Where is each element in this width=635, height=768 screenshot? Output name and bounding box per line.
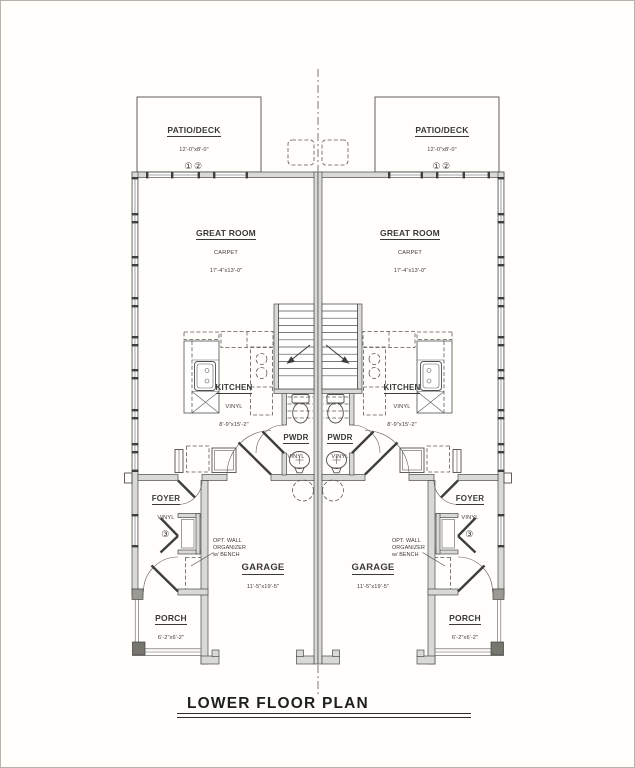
porch-post [133, 642, 146, 655]
opt-organizer-outline [186, 553, 214, 590]
staircase [279, 304, 315, 389]
pwdr-label-left: PWDR VINYL [274, 427, 318, 463]
upper-cabinets [184, 332, 219, 340]
great-room-label-left: GREAT ROOM CARPET 17'-4"x13'-0" [178, 223, 274, 277]
drawing-title: LOWER FLOOR PLAN [187, 695, 369, 713]
kitchen-label-right: KITCHEN VINYL 8'-9"x15'-2" [377, 377, 427, 431]
toilet-icon [292, 395, 309, 424]
ac-pad [288, 140, 314, 165]
patio-label-left: PATIO/DECK 12'-0"x8'-0" ①② [146, 120, 242, 174]
kitchen-label-left: KITCHEN VINYL 8'-9"x15'-2" [209, 377, 259, 431]
patio-label-right: PATIO/DECK 12'-0"x8'-0" ①② [394, 120, 490, 174]
pwdr-label-right: PWDR VINYL [318, 427, 362, 463]
porch-post [132, 589, 143, 600]
foyer-label-left: FOYER VINYL ③ [142, 488, 190, 542]
porch-label-left: PORCH 6'-2"x6'-2" [141, 608, 201, 644]
opt-organizer-note-right: OPT. WALL ORGANIZER w/ BENCH [392, 538, 434, 558]
foyer-label-right: FOYER VINYL ③ [446, 488, 494, 542]
hall-door [239, 443, 272, 475]
garage-label-right: GARAGE 11'-5"x19'-5" [329, 557, 417, 593]
title-underline [177, 713, 471, 718]
water-heater [293, 480, 314, 501]
floor-plan-linework [1, 1, 634, 767]
hall-bench [175, 446, 236, 473]
garage-label-left: GARAGE 11'-5"x19'-5" [219, 557, 307, 593]
exterior-fixture [125, 473, 133, 483]
porch-label-right: PORCH 6'-2"x6'-2" [435, 608, 495, 644]
great-room-label-right: GREAT ROOM CARPET 17'-4"x13'-0" [362, 223, 458, 277]
floor-plan-page: PATIO/DECK 12'-0"x8'-0" ①② GREAT ROOM CA… [0, 0, 635, 768]
opt-organizer-note-left: OPT. WALL ORGANIZER w/ BENCH [213, 538, 255, 558]
entry-door [152, 566, 179, 592]
